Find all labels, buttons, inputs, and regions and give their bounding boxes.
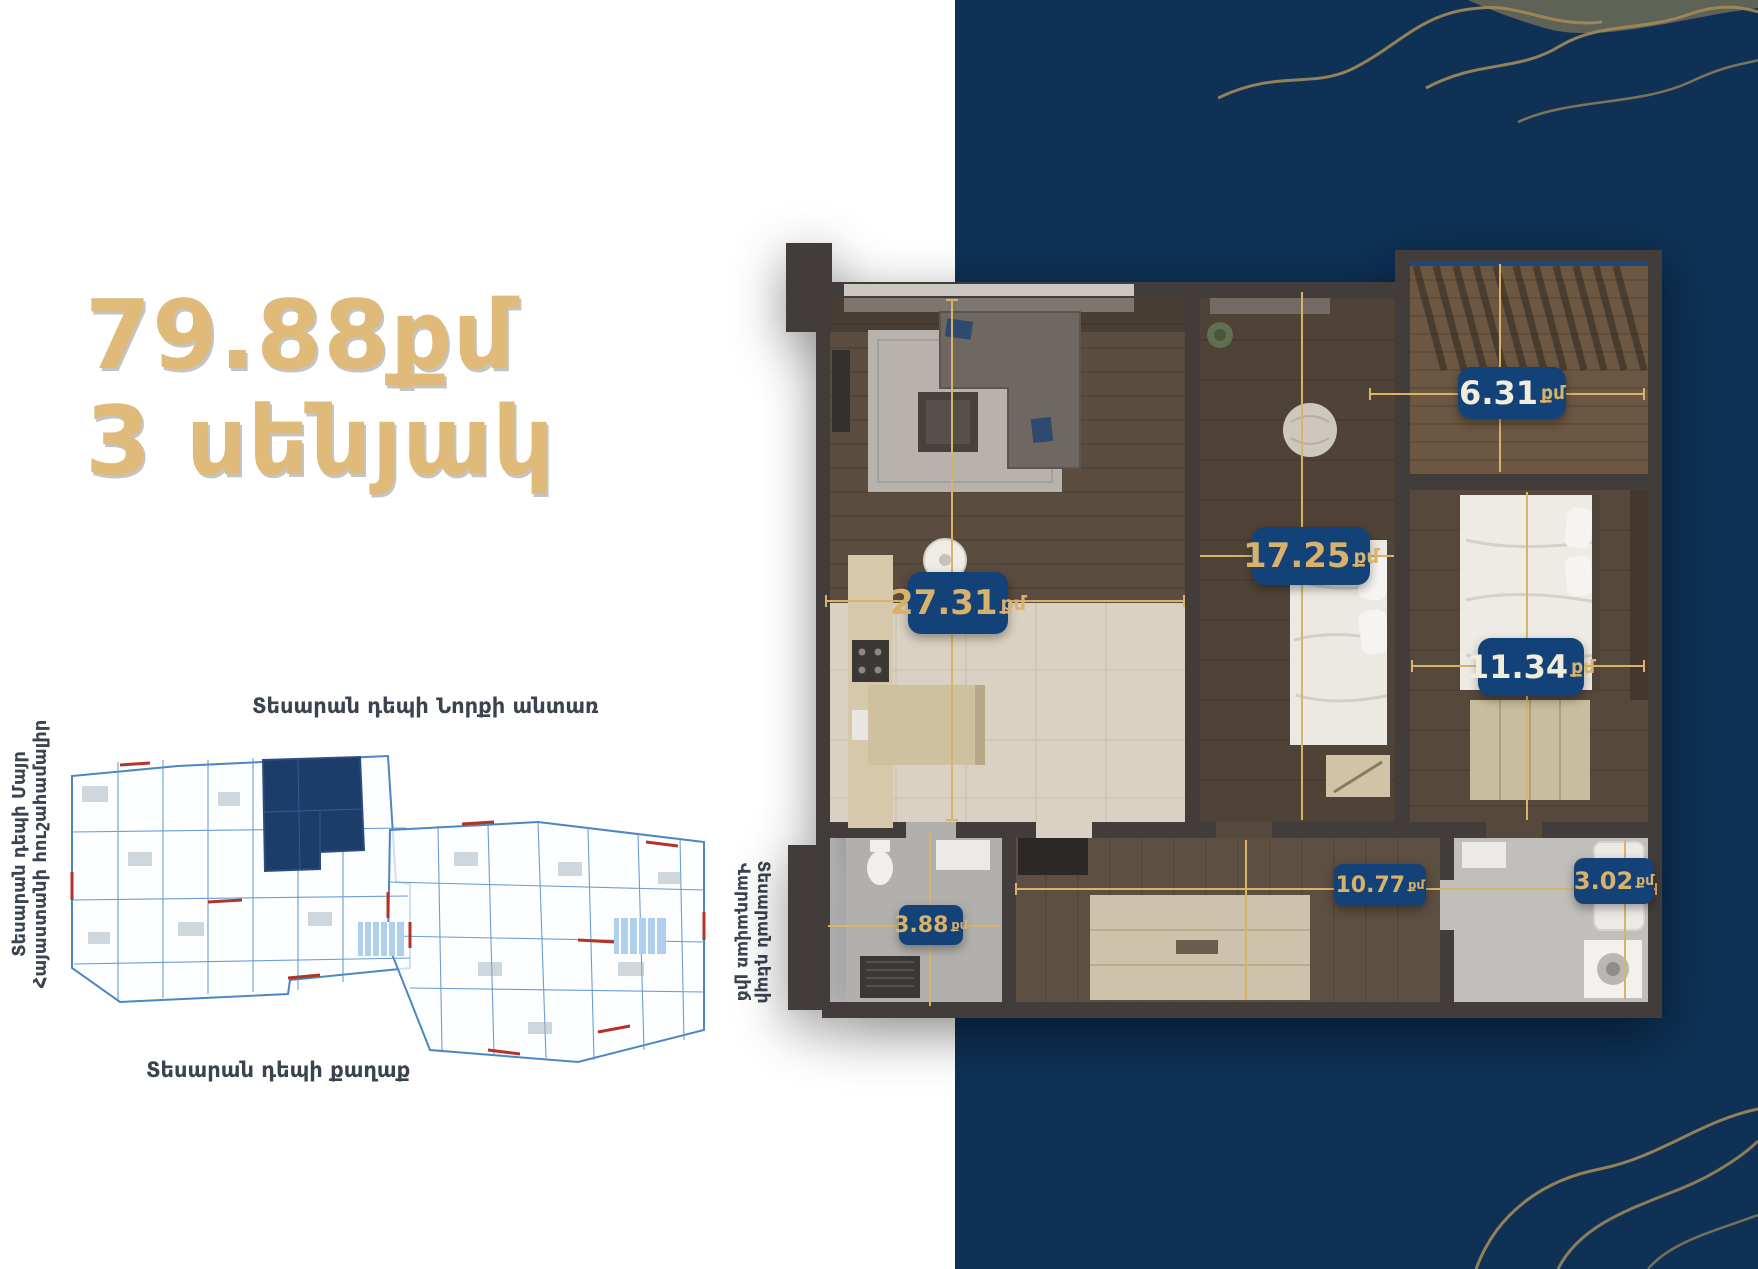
view-label-top: Տեսարան դեպի Նորքի անտառ — [252, 694, 599, 718]
tv-console — [832, 350, 850, 432]
toilet — [867, 851, 893, 885]
room-area-badge-bathroom-2: 3.02քմ — [1574, 858, 1654, 904]
stove — [852, 640, 889, 682]
room-area-badge-living-room: 27.31քմ — [908, 572, 1008, 634]
apartment-area-title: 79.88քմ — [85, 283, 555, 389]
kitchen-island — [868, 685, 985, 765]
hall-mat — [1018, 838, 1088, 875]
bedroom-1-curtain — [1210, 298, 1330, 314]
gold-wave-decoration-top-icon — [1218, 0, 1758, 150]
bedroom-2-curtain — [1630, 490, 1648, 700]
room-area-badge-terrace: 6.31քմ — [1458, 367, 1566, 419]
apartment-rooms-title: 3 սենյակ — [85, 389, 555, 495]
gold-wave-decoration-bottom-icon — [1418, 1029, 1758, 1269]
pouf — [1283, 403, 1337, 457]
room-area-badge-bedroom-1: 17.25քմ — [1252, 527, 1370, 585]
view-label-left: Տեսարան դեպի Մայր Հայաստանի հուշահամալիր — [10, 716, 51, 992]
room-area-badge-hallway: 10.77քմ — [1334, 864, 1426, 906]
bathroom-1-sink — [936, 840, 990, 870]
apartment-title: 79.88քմ 3 սենյակ — [85, 283, 555, 496]
page-root: 79.88քմ 3 սենյակ Տեսարան դեպի Նորքի անտա… — [0, 0, 1758, 1269]
view-label-right: Տեսարան դեպի Վարդավառ լիճ — [733, 852, 772, 1012]
room-area-badge-bathroom-1: 3.88քմ — [899, 905, 963, 945]
bathroom-2-sink — [1462, 842, 1506, 868]
building-blueprint — [58, 732, 706, 1064]
living-room-curtain — [844, 298, 1134, 312]
room-area-badge-bedroom-2: 11.34քմ — [1478, 638, 1584, 696]
